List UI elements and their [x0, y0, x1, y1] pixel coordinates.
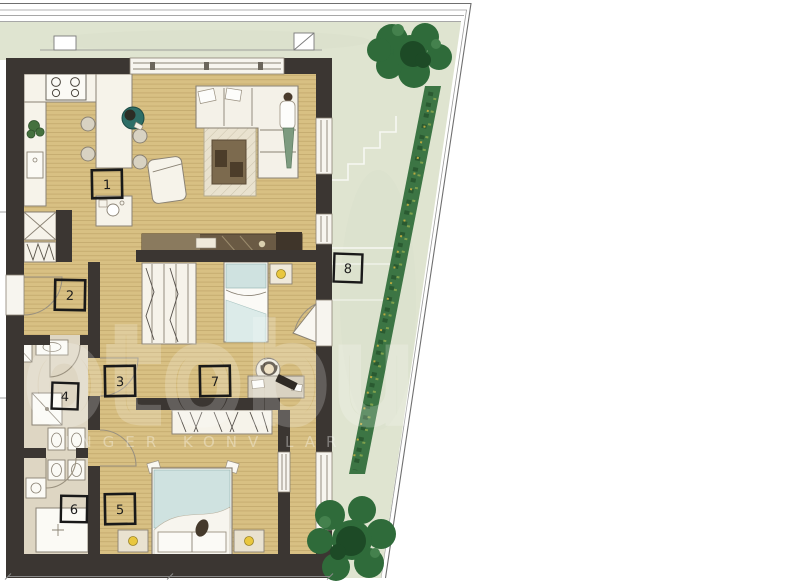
svg-text:8: 8 [344, 262, 353, 277]
wall [6, 315, 24, 556]
wall [136, 250, 316, 262]
wall [278, 492, 290, 556]
floor-plan-canvas: otobu INGER KONV LAR 1 2 3 4 5 6 [0, 0, 800, 581]
window-right-2 [316, 214, 332, 244]
floor-plan-drawing: otobu INGER KONV LAR 1 2 3 4 5 6 [0, 0, 800, 581]
wall [6, 58, 130, 74]
fence-post [54, 36, 76, 50]
loggia-door [278, 452, 290, 492]
svg-text:3: 3 [116, 375, 125, 390]
coffee-table [212, 140, 246, 184]
nightstand-1 [270, 264, 292, 284]
sofa-pillow [225, 88, 242, 101]
nightstand-2-left [118, 530, 148, 552]
lawn-shading [50, 30, 370, 52]
svg-text:6: 6 [70, 503, 79, 518]
wall [6, 58, 24, 275]
watermark: otobu INGER KONV LAR [25, 302, 419, 451]
washing-machine [26, 478, 46, 498]
toilet-b [48, 460, 65, 480]
svg-text:1: 1 [103, 178, 112, 193]
svg-text:2: 2 [66, 289, 75, 304]
svg-text:7: 7 [211, 375, 220, 390]
lamp-symbol [129, 537, 138, 546]
entry-door-opening [6, 275, 24, 315]
wall [316, 58, 332, 118]
hall-closets [24, 212, 56, 262]
wall [56, 210, 72, 262]
kitchen-sink [27, 152, 43, 178]
bed-double [147, 461, 239, 556]
window-top [130, 58, 284, 74]
wall [316, 174, 332, 214]
stove [46, 74, 86, 100]
nightstand-2-right [234, 530, 264, 552]
watermark-main: otobu [25, 302, 419, 451]
svg-text:4: 4 [61, 390, 70, 405]
armchair [147, 156, 187, 204]
bidet-b [68, 460, 85, 480]
wall [88, 466, 100, 556]
kitchen-island [96, 196, 132, 226]
wall [6, 554, 332, 578]
wall [316, 244, 332, 300]
window-right-1 [316, 118, 332, 174]
svg-text:5: 5 [116, 503, 125, 518]
lamp-symbol [245, 537, 254, 546]
lamp-symbol [277, 270, 286, 279]
watermark-sub: INGER KONV LAR [65, 433, 347, 451]
